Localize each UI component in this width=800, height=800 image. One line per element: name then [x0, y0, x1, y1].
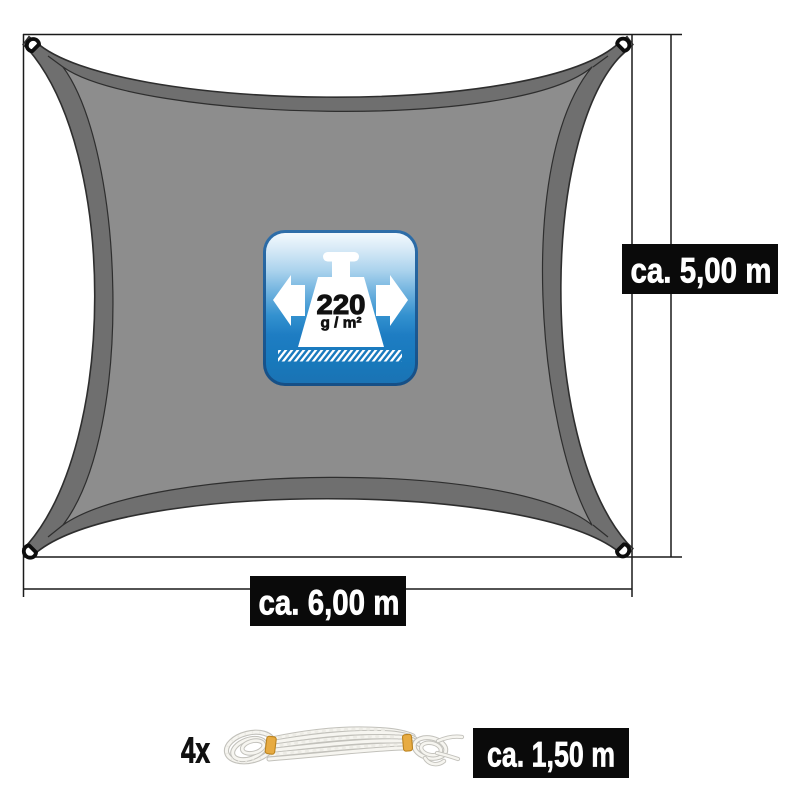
svg-text:ca. 5,00 m: ca. 5,00 m [631, 252, 772, 291]
svg-text:ca. 1,50 m: ca. 1,50 m [487, 736, 615, 775]
svg-text:g / m²: g / m² [321, 315, 362, 332]
svg-text:ca. 6,00 m: ca. 6,00 m [259, 584, 400, 623]
svg-text:4x: 4x [181, 730, 210, 771]
